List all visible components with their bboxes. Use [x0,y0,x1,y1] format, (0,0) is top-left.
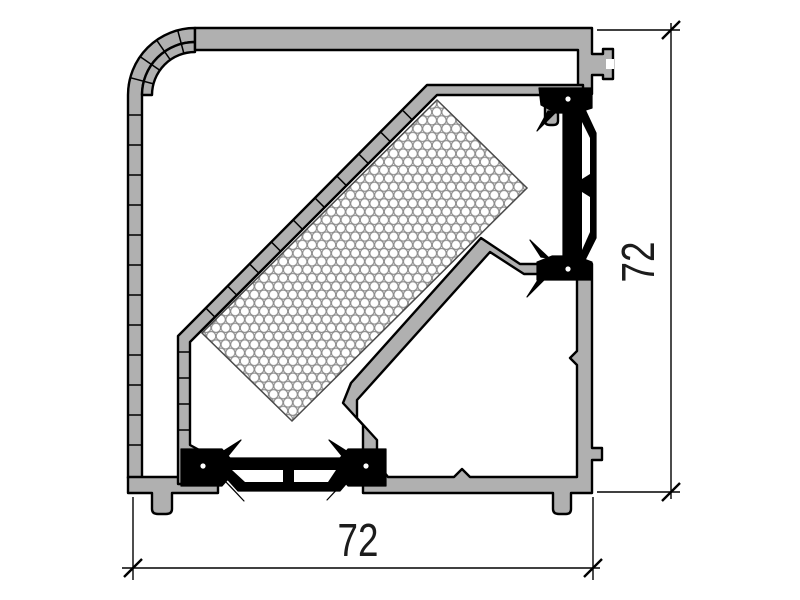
right-strut-bottom-anchor [537,256,592,280]
bottom-strut-left-anchor [181,449,230,486]
bottom-anchor-spike [530,240,549,258]
height-dimension-label: 72 [612,242,664,283]
drawing-svg: 72 72 [0,0,800,600]
bottom-anchor-spike2 [527,279,545,297]
height-dimension: 72 [597,21,680,501]
left-anchor-spike [222,440,241,456]
bottom-strut-right-anchor [340,449,386,486]
right-strut-body [563,103,596,266]
side-nub-notch [606,59,614,69]
outer-cover-profile [128,28,218,514]
right-anchor-spike [329,440,348,456]
bottom-anchor-pin [565,266,570,271]
width-dimension-label: 72 [338,514,379,566]
profile-cross-section-drawing: 72 72 [0,0,800,600]
right-anchor-pin [363,463,368,468]
top-anchor-pin [565,96,570,101]
width-dimension: 72 [122,497,602,580]
left-anchor-pin [200,463,205,468]
bottom-strut-body [212,458,358,491]
right-thermal-break [527,88,596,297]
